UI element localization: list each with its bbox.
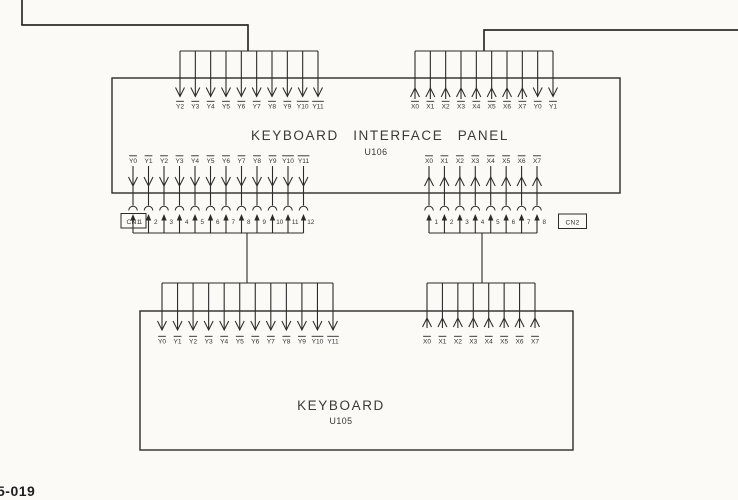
- connector-socket-icon: [191, 206, 200, 210]
- signal-label: Y0: [129, 158, 137, 165]
- signal-label: X1: [440, 158, 448, 165]
- connector-socket-icon: [517, 206, 526, 210]
- signal-label: X7: [531, 339, 539, 346]
- signal-label: X3: [457, 104, 465, 111]
- connector-socket-icon: [222, 206, 231, 210]
- signal-label: Y0: [534, 104, 542, 111]
- signal-label: Y9: [298, 339, 306, 346]
- signal-label: X1: [438, 339, 446, 346]
- keyboard-interface-panel: KEYBOARD INTERFACE PANEL U106: [112, 78, 620, 193]
- connector-socket-icon: [175, 206, 184, 210]
- signal-label: X1: [426, 104, 434, 111]
- cn2-label: CN2: [565, 219, 579, 226]
- connector-socket-icon: [237, 206, 246, 210]
- connector-socket-icon: [533, 206, 542, 210]
- connector-socket-icon: [471, 206, 480, 210]
- signal-label: X3: [469, 339, 477, 346]
- pin-number: 2: [450, 219, 454, 226]
- panel-title: KEYBOARD INTERFACE PANEL: [251, 128, 509, 143]
- signal-label: Y2: [176, 104, 184, 111]
- keyboard-title: KEYBOARD: [297, 398, 385, 413]
- signal-label: X5: [500, 339, 508, 346]
- signal-label: Y9: [268, 158, 276, 165]
- pin-number: 6: [512, 219, 516, 226]
- connector-socket-icon: [299, 206, 308, 210]
- signal-label: Y3: [191, 104, 199, 111]
- pin-number: 5: [496, 219, 500, 226]
- signal-label: Y4: [220, 339, 228, 346]
- signal-label: Y1: [144, 158, 152, 165]
- signal-label: X2: [456, 158, 464, 165]
- signal-label: Y3: [205, 339, 213, 346]
- signal-label: Y10: [312, 339, 324, 346]
- pin-number: 11: [292, 219, 299, 226]
- pin-number: 9: [262, 219, 266, 226]
- signal-label: X3: [471, 158, 479, 165]
- signal-label: Y11: [312, 104, 324, 111]
- connector-socket-icon: [253, 206, 262, 210]
- pin-number: 3: [465, 219, 469, 226]
- signal-label: Y3: [175, 158, 183, 165]
- connector-socket-icon: [144, 206, 153, 210]
- pin-number: 4: [481, 219, 485, 226]
- signal-label: Y1: [549, 104, 557, 111]
- pin-number: 10: [276, 219, 284, 226]
- pin-number: 3: [169, 219, 173, 226]
- signal-label: Y7: [253, 104, 261, 111]
- pin-number: 2: [154, 219, 158, 226]
- signal-label: Y6: [222, 158, 230, 165]
- signal-label: X2: [442, 104, 450, 111]
- schematic-diagram: KEYBOARD INTERFACE PANEL U106 KEYBOARD U…: [0, 0, 738, 500]
- signal-label: Y5: [206, 158, 214, 165]
- pin-number: 4: [185, 219, 189, 226]
- keyboard-ref: U105: [329, 416, 352, 426]
- connector-socket-icon: [129, 206, 138, 210]
- connector-socket-icon: [486, 206, 495, 210]
- signal-label: Y7: [237, 158, 245, 165]
- signal-label: Y11: [327, 339, 339, 346]
- signal-label: X7: [533, 158, 541, 165]
- pin-number: 7: [527, 219, 531, 226]
- signal-label: X4: [472, 104, 480, 111]
- signal-label: Y2: [160, 158, 168, 165]
- signal-label: Y4: [191, 158, 199, 165]
- signal-label: Y8: [253, 158, 261, 165]
- connector-socket-icon: [160, 206, 169, 210]
- pin-number: 5: [200, 219, 204, 226]
- connector-socket-icon: [440, 206, 449, 210]
- signal-label: X0: [411, 104, 419, 111]
- signal-label: Y1: [174, 339, 182, 346]
- pin-number: 8: [247, 219, 251, 226]
- signal-label: X6: [518, 158, 526, 165]
- page-number: 5-019: [0, 483, 35, 499]
- connector-socket-icon: [456, 206, 465, 210]
- connector-socket-icon: [502, 206, 511, 210]
- pin-number: 12: [307, 219, 315, 226]
- pin-number: 7: [231, 219, 235, 226]
- signal-label: X4: [485, 339, 493, 346]
- signal-label: X2: [454, 339, 462, 346]
- signal-label: Y6: [251, 339, 259, 346]
- signal-label: Y10: [282, 158, 294, 165]
- signal-label: Y5: [222, 104, 230, 111]
- signal-label: Y10: [297, 104, 309, 111]
- signal-label: X6: [516, 339, 524, 346]
- signal-label: Y4: [207, 104, 215, 111]
- signal-label: X5: [502, 158, 510, 165]
- connector-socket-icon: [425, 206, 434, 210]
- pin-number: 1: [138, 219, 142, 226]
- signal-label: Y8: [268, 104, 276, 111]
- signal-label: Y9: [283, 104, 291, 111]
- pin-number: 6: [216, 219, 220, 226]
- wires-and-signals: Y2Y3Y4Y5Y6Y7Y8Y9Y10Y11X0X1X2X3X4X5X6X7Y0…: [21, 0, 738, 346]
- signal-label: Y8: [282, 339, 290, 346]
- connector-socket-icon: [284, 206, 293, 210]
- pin-number: 8: [542, 219, 546, 226]
- signal-label: X0: [425, 158, 433, 165]
- signal-label: Y6: [237, 104, 245, 111]
- panel-ref: U106: [364, 147, 387, 157]
- signal-label: X5: [488, 104, 496, 111]
- signal-label: Y7: [267, 339, 275, 346]
- signal-label: Y5: [236, 339, 244, 346]
- keyboard-unit: KEYBOARD U105: [140, 311, 573, 450]
- signal-label: Y0: [158, 339, 166, 346]
- keyboard-box: [140, 311, 573, 450]
- pin-number: 1: [434, 219, 438, 226]
- signal-label: X6: [503, 104, 511, 111]
- signal-label: X4: [487, 158, 495, 165]
- signal-label: X7: [518, 104, 526, 111]
- connector-socket-icon: [206, 206, 215, 210]
- connector-cn2: CN2: [559, 214, 587, 229]
- signal-label: Y2: [189, 339, 197, 346]
- connector-socket-icon: [268, 206, 277, 210]
- signal-label: Y11: [298, 158, 310, 165]
- signal-label: X0: [423, 339, 431, 346]
